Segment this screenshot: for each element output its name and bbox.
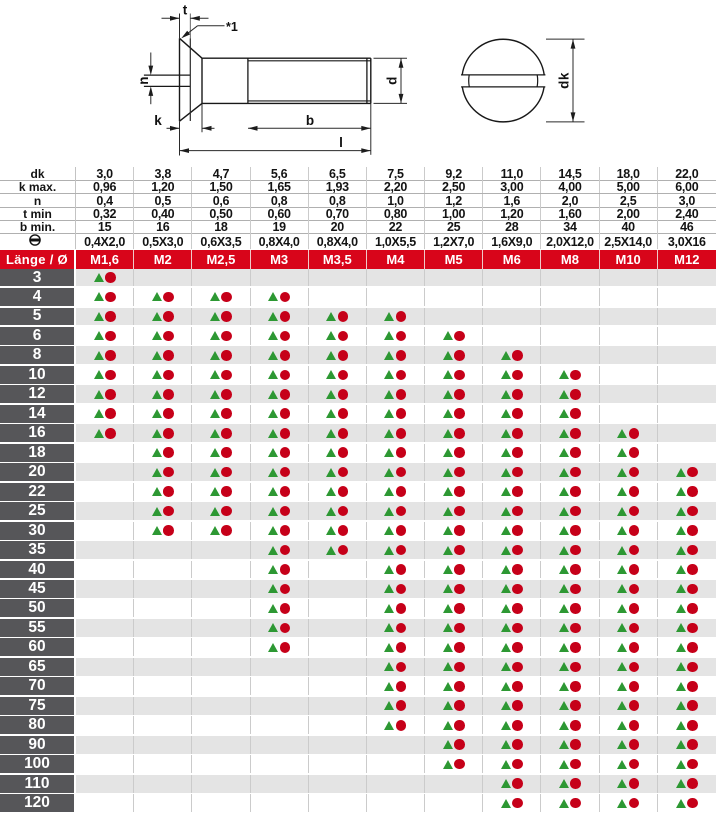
svg-text:l: l [339, 135, 343, 150]
svg-text:dk: dk [557, 72, 572, 89]
svg-text:t: t [183, 3, 188, 18]
svg-text:b: b [306, 113, 314, 128]
svg-text:k: k [154, 113, 162, 128]
svg-text:d: d [385, 77, 400, 85]
svg-text:*1: *1 [226, 20, 238, 34]
svg-text:n: n [136, 77, 151, 85]
